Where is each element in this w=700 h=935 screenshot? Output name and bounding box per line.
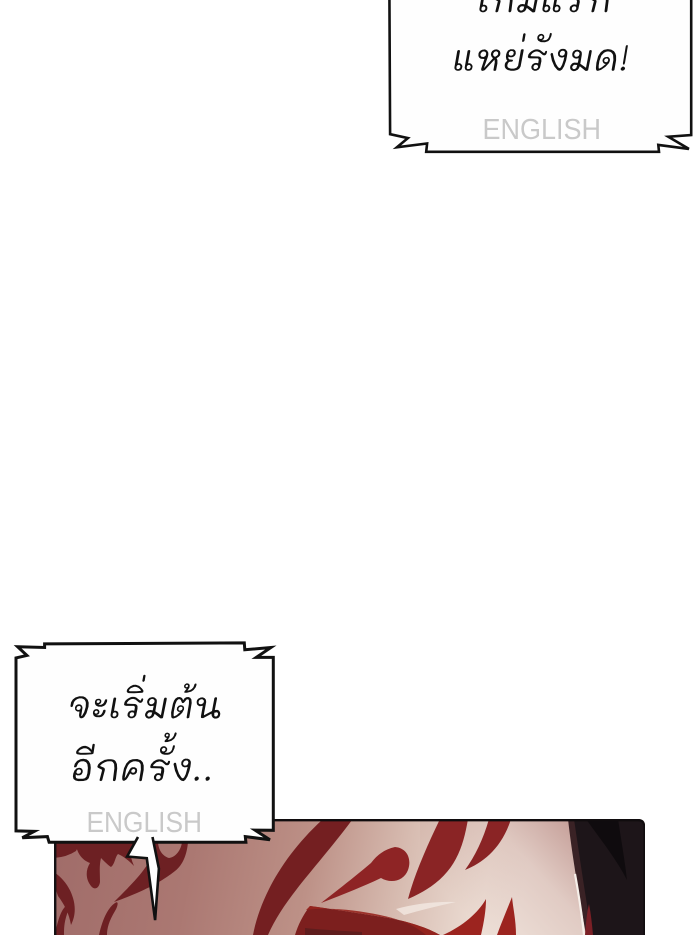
svg-text:ENGLISH: ENGLISH	[87, 807, 203, 839]
svg-text:ENGLISH: ENGLISH	[483, 114, 602, 146]
